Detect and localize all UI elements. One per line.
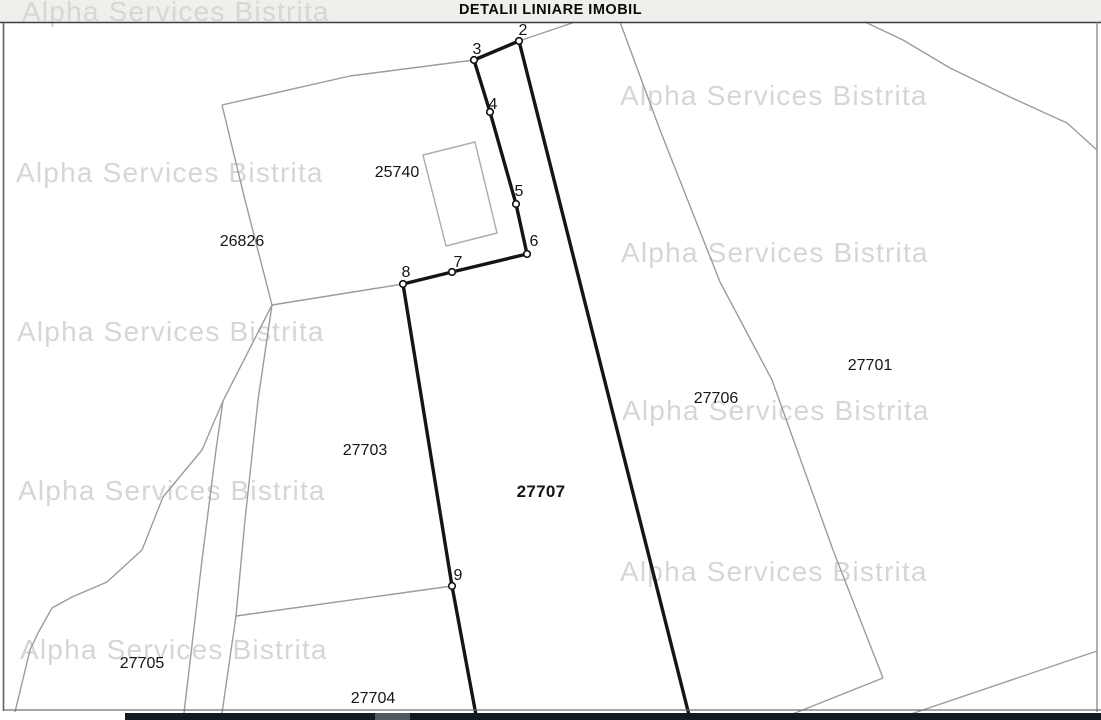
south-boundary-27701 xyxy=(908,651,1097,715)
parcel-label-27705: 27705 xyxy=(120,655,165,673)
vertex-label-7: 7 xyxy=(454,254,463,272)
vertex-label-8: 8 xyxy=(402,264,411,282)
parcel-label-26826: 26826 xyxy=(220,233,265,251)
bottom-bar-accent xyxy=(375,713,410,720)
map-svg xyxy=(0,0,1101,720)
vertex-label-3: 3 xyxy=(473,41,482,59)
parcel-label-27701: 27701 xyxy=(848,357,893,375)
vertex-label-4: 4 xyxy=(489,96,498,114)
vertex-label-9: 9 xyxy=(454,567,463,585)
cadastral-plan-page: DETALII LINIARE IMOBIL Alpha Services Bi… xyxy=(0,0,1101,720)
west-boundary-26826 xyxy=(222,105,272,305)
north-boundary-27701 xyxy=(865,22,1097,150)
south-boundary-26826 xyxy=(272,284,403,305)
bottom-bar xyxy=(125,713,1101,720)
parcel-label-27707-subject: 27707 xyxy=(517,482,566,502)
parcel-label-27704: 27704 xyxy=(351,690,396,708)
vertex-label-6: 6 xyxy=(530,233,539,251)
vertex-label-2: 2 xyxy=(519,22,528,40)
parcel-label-25740: 25740 xyxy=(375,164,420,182)
vertex-label-5: 5 xyxy=(515,183,524,201)
parcel-label-27706: 27706 xyxy=(694,390,739,408)
parcel-label-27703: 27703 xyxy=(343,442,388,460)
boundary-27706-27701 xyxy=(620,22,883,678)
subject-parcel-outline-27707 xyxy=(403,41,689,715)
vertex-marker xyxy=(524,251,531,258)
vertex-marker xyxy=(513,201,520,208)
building-footprint-25740 xyxy=(423,142,497,246)
north-boundary-26826 xyxy=(222,60,474,105)
page-title: DETALII LINIARE IMOBIL xyxy=(0,2,1101,18)
boundary-27703-27704 xyxy=(236,586,452,616)
lane-east-line xyxy=(222,305,272,713)
